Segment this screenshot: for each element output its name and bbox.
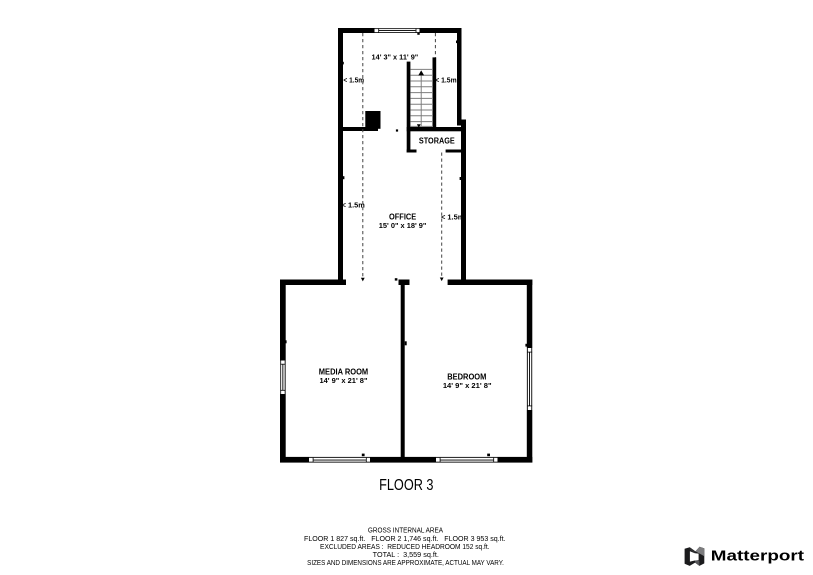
svg-text:< 1.5m: < 1.5m xyxy=(342,201,366,210)
svg-text:< 1.5m: < 1.5m xyxy=(343,75,364,84)
svg-text:14' 9" x 21' 8": 14' 9" x 21' 8" xyxy=(443,381,492,390)
svg-text:15' 0" x 18' 9": 15' 0" x 18' 9" xyxy=(379,221,427,230)
svg-text:14' 3" x 11' 9": 14' 3" x 11' 9" xyxy=(372,53,419,62)
svg-text:< 1.5m: < 1.5m xyxy=(441,213,465,222)
svg-text:FLOOR 3: FLOOR 3 xyxy=(379,477,433,494)
svg-text:14' 9" x 21' 8": 14' 9" x 21' 8" xyxy=(320,376,368,385)
svg-text:STORAGE: STORAGE xyxy=(419,135,455,145)
svg-text:Matterport: Matterport xyxy=(711,548,804,564)
svg-text:MEDIA ROOM: MEDIA ROOM xyxy=(319,366,368,376)
svg-text:SIZES AND DIMENSIONS ARE APPRO: SIZES AND DIMENSIONS ARE APPROXIMATE, AC… xyxy=(307,558,504,567)
svg-text:< 1.5m: < 1.5m xyxy=(435,75,457,84)
